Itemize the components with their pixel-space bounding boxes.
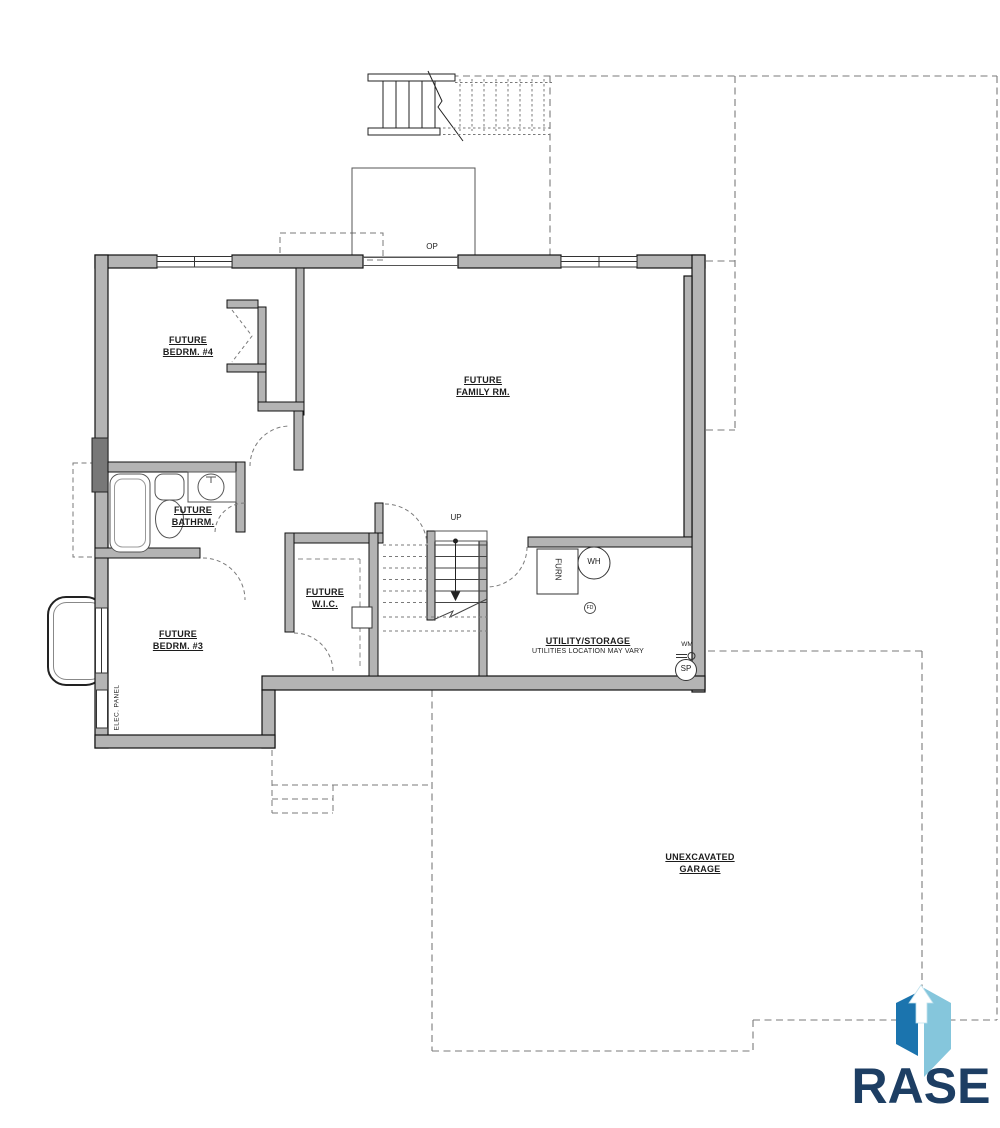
room-label-utility-storage: UTILITY/STORAGE UTILITIES LOCATION MAY V…	[518, 635, 658, 657]
exterior-walls	[95, 255, 705, 748]
water-meter-tag: WM	[676, 641, 698, 648]
room-label-bedroom4: FUTURE BEDRM. #4	[128, 334, 248, 358]
room-label-garage: UNEXCAVATED GARAGE	[640, 851, 760, 875]
upper-stairs	[368, 71, 463, 141]
upper-stairs-dashed-continuation	[443, 79, 552, 135]
electrical-panel-tag: ELEC. PANEL	[113, 673, 120, 743]
wall-opening-lines	[363, 258, 458, 266]
rase-logo-wordmark: RASE	[845, 1060, 997, 1113]
room-label-bathroom: FUTURE BATHRM.	[133, 504, 253, 528]
entry-landing-outline	[352, 168, 475, 257]
room-label-bedroom3: FUTURE BEDRM. #3	[118, 628, 238, 652]
furnace-tag: FURN	[553, 539, 562, 599]
sump-pit-tag: SP	[675, 665, 697, 674]
overhead-footprint-dashed-outline	[440, 76, 997, 1020]
floor-plan-sheet: FUTURE BEDRM. #4 FUTURE FAMILY RM. FUTUR…	[0, 0, 1000, 1128]
bathroom-foundation-window	[92, 438, 108, 492]
interior-walls	[95, 268, 692, 676]
floor-drain-tag: FD	[584, 606, 596, 612]
electrical-panel-box	[97, 690, 108, 728]
stairs-up-tag: UP	[444, 514, 468, 523]
room-label-family-room: FUTURE FAMILY RM.	[423, 374, 543, 398]
closet-shelf-dashed	[298, 559, 360, 668]
water-heater-tag: WH	[582, 558, 606, 567]
bedroom3-window	[96, 608, 108, 673]
room-label-wic: FUTURE W.I.C.	[265, 586, 385, 610]
opening-tag: OP	[420, 243, 444, 252]
floor-plan-drawing	[0, 0, 1000, 1128]
sink-vanity-icon	[188, 472, 236, 502]
